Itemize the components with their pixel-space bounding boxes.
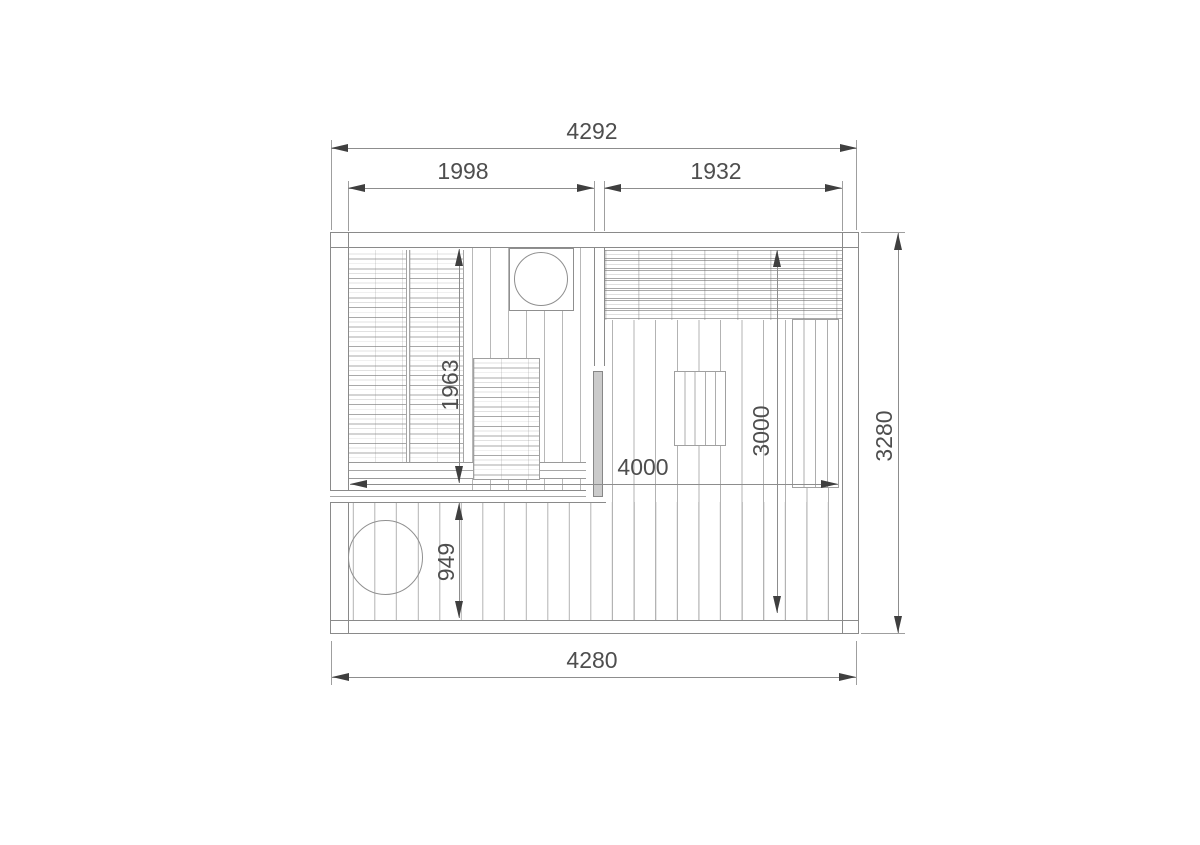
dim-arrow-left-icon <box>332 673 349 681</box>
dim-arrow-left-icon <box>348 184 365 192</box>
dim-label: 1932 <box>690 158 741 184</box>
extension-line <box>856 641 857 685</box>
table <box>674 371 726 446</box>
dim-arrow-down-icon <box>773 596 781 613</box>
dim-label: 1963 <box>437 335 463 435</box>
dim-label: 4280 <box>566 647 617 673</box>
dim-arrow-up-icon <box>773 250 781 267</box>
extension-line <box>842 181 843 231</box>
side-bench <box>792 319 839 488</box>
dim-arrow-right-icon <box>840 144 857 152</box>
dim-arrow-left-icon <box>350 480 367 488</box>
dim-arrow-left-icon <box>331 144 348 152</box>
sauna-front-wall <box>330 490 606 503</box>
dim-arrow-down-icon <box>455 466 463 483</box>
sauna-door-leaf <box>593 371 603 497</box>
dim-line <box>350 484 838 485</box>
inner-wall-left <box>348 232 349 633</box>
dim-label: 4000 <box>617 454 668 480</box>
dim-line <box>332 677 856 678</box>
extension-line <box>594 181 595 231</box>
extension-line <box>331 140 332 230</box>
dim-arrow-left-icon <box>604 184 621 192</box>
dim-arrow-right-icon <box>825 184 842 192</box>
dim-arrow-up-icon <box>894 233 902 250</box>
dim-label: 1998 <box>437 158 488 184</box>
inner-wall-right <box>842 232 843 633</box>
dim-arrow-right-icon <box>839 673 856 681</box>
dim-arrow-down-icon <box>894 616 902 633</box>
dim-line <box>777 250 778 613</box>
dim-line <box>331 148 857 149</box>
inner-wall-bottom <box>330 620 859 621</box>
dim-arrow-up-icon <box>455 249 463 266</box>
dim-line <box>348 188 594 189</box>
extension-line <box>861 633 905 634</box>
dim-label: 3280 <box>871 386 897 486</box>
dim-label: 3000 <box>748 381 774 481</box>
hot-tub <box>348 520 423 595</box>
dim-arrow-right-icon <box>577 184 594 192</box>
extension-line <box>856 140 857 230</box>
floor-plan-canvas: 4292 1998 1932 1963 949 4000 3000 <box>0 0 1200 845</box>
dim-arrow-right-icon <box>821 480 838 488</box>
dim-label: 4292 <box>566 118 617 144</box>
dim-line <box>604 188 842 189</box>
dim-label: 949 <box>433 512 459 612</box>
dim-line <box>898 233 899 633</box>
